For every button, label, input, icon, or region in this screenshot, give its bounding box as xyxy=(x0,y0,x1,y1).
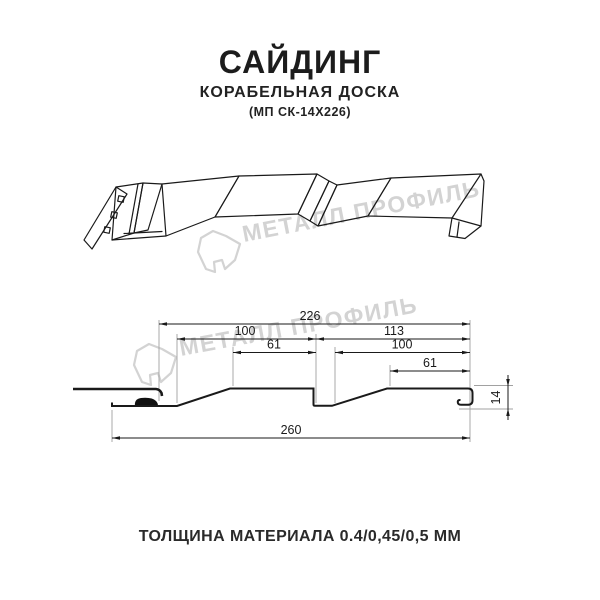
nail-hole-icon xyxy=(104,227,111,234)
profile-cross-section: МЕТАЛЛ ПРОФИЛЬ 226 xyxy=(0,295,600,465)
lock-fold-inner-line xyxy=(129,184,138,234)
dim-label-61-left: 61 xyxy=(267,338,281,352)
right-hem-inner-line xyxy=(457,222,459,237)
dim-260: 260 xyxy=(112,423,470,440)
dim-label-100-left: 100 xyxy=(235,324,256,338)
dim-14: 14 xyxy=(489,375,510,420)
profile-linework xyxy=(73,389,473,407)
profile-outline xyxy=(112,389,473,407)
product-code: (МП СК-14Х226) xyxy=(0,105,600,119)
page-title: САЙДИНГ xyxy=(0,46,600,78)
siding-spec-sheet: САЙДИНГ КОРАБЕЛЬНАЯ ДОСКА (МП СК-14Х226)… xyxy=(0,0,600,600)
watermark-text: МЕТАЛЛ ПРОФИЛЬ xyxy=(240,175,482,247)
dim-label-226: 226 xyxy=(300,309,321,323)
dim-label-14: 14 xyxy=(489,391,503,405)
dim-label-113: 113 xyxy=(384,324,404,338)
brand-logo-icon xyxy=(134,344,176,385)
dim-100-right: 100 xyxy=(335,338,470,355)
nail-hole-icon xyxy=(118,196,125,203)
slope1-face xyxy=(162,176,239,236)
starter-strip-line xyxy=(73,389,162,396)
thickness-note: ТОЛЩИНА МАТЕРИАЛА 0.4/0,45/0,5 ММ xyxy=(0,528,600,546)
lock-fold-b xyxy=(134,183,162,233)
page-subtitle: КОРАБЕЛЬНАЯ ДОСКА xyxy=(0,84,600,102)
dim-label-61-right: 61 xyxy=(423,356,437,370)
dim-61-right: 61 xyxy=(390,356,470,373)
dim-label-260: 260 xyxy=(281,423,302,437)
bottom-hem-lines xyxy=(112,232,166,241)
watermark-brand-3d: МЕТАЛЛ ПРОФИЛЬ xyxy=(198,175,482,272)
right-hem-fold xyxy=(449,218,481,239)
lock-curl xyxy=(135,398,158,406)
dim-label-100-right: 100 xyxy=(392,338,413,352)
brand-logo-icon xyxy=(198,231,240,272)
header: САЙДИНГ КОРАБЕЛЬНАЯ ДОСКА (МП СК-14Х226) xyxy=(0,0,600,119)
siding-3d-view: МЕТАЛЛ ПРОФИЛЬ xyxy=(0,140,600,282)
